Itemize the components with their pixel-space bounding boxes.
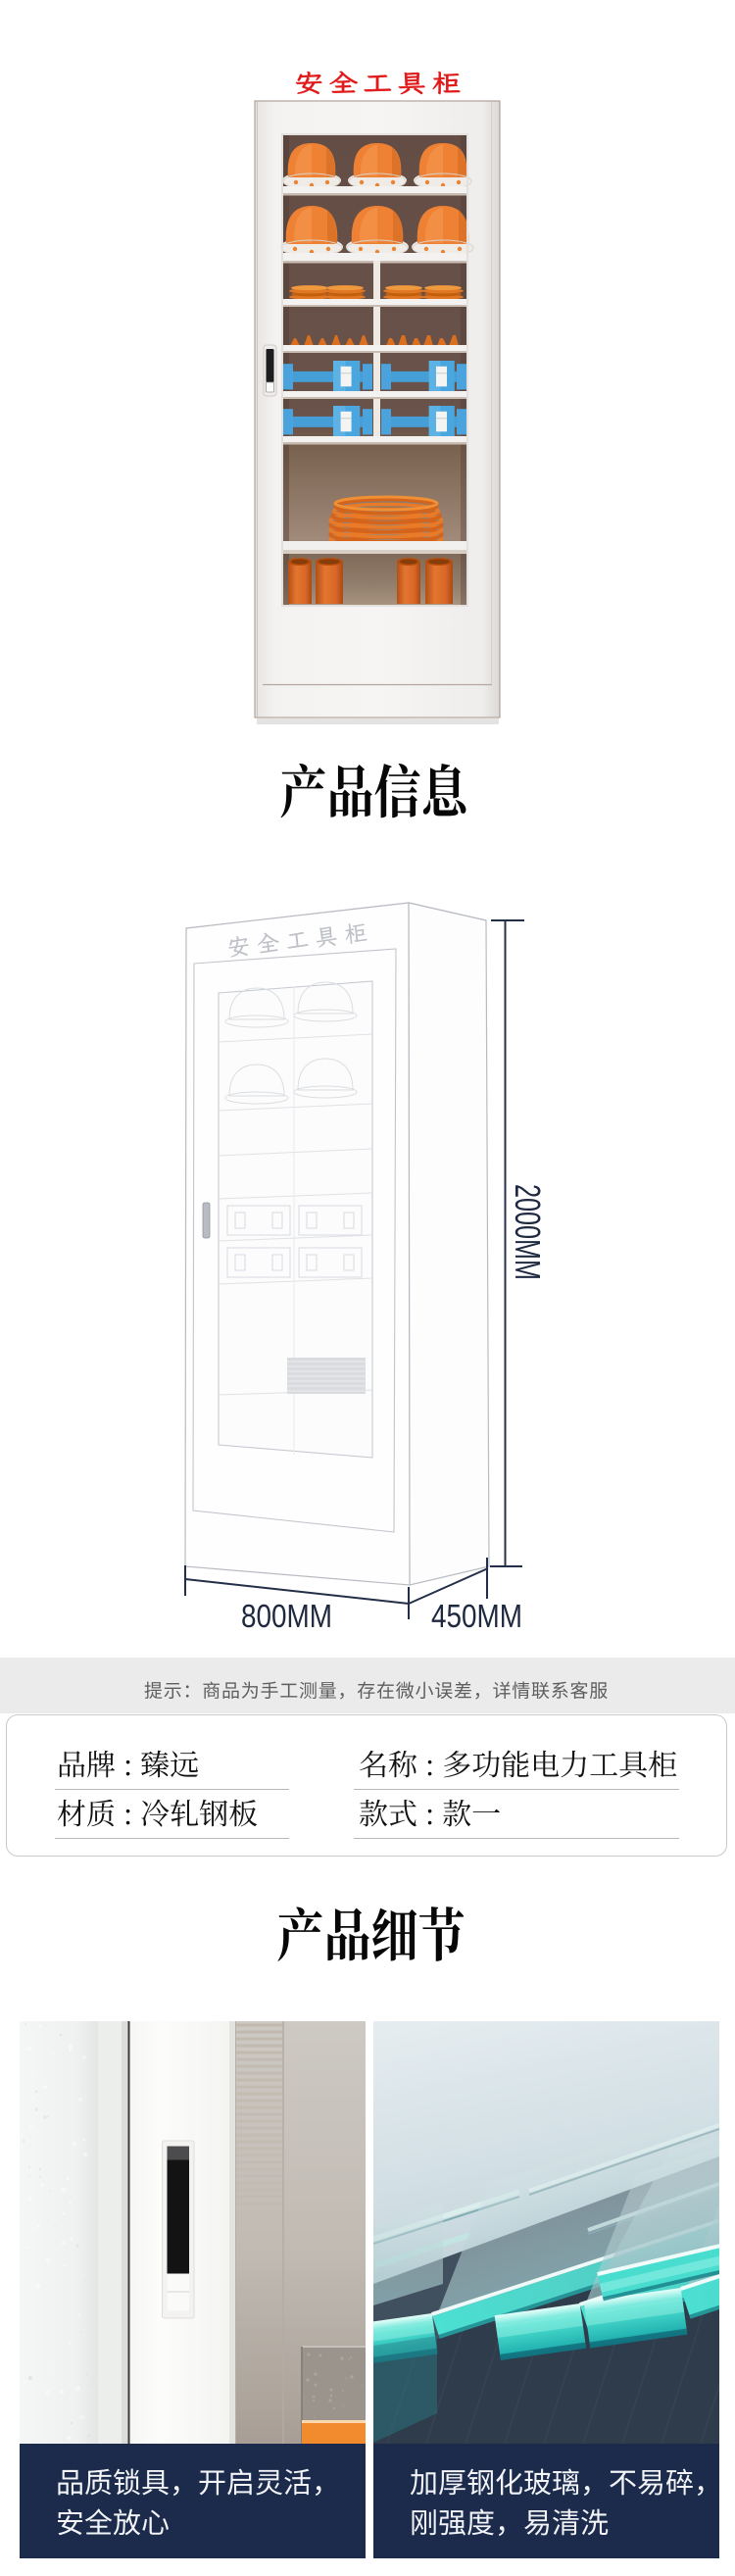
- svg-text:800MM: 800MM: [241, 1598, 332, 1635]
- svg-text:2000MM: 2000MM: [508, 1184, 548, 1280]
- svg-text:450MM: 450MM: [431, 1598, 522, 1635]
